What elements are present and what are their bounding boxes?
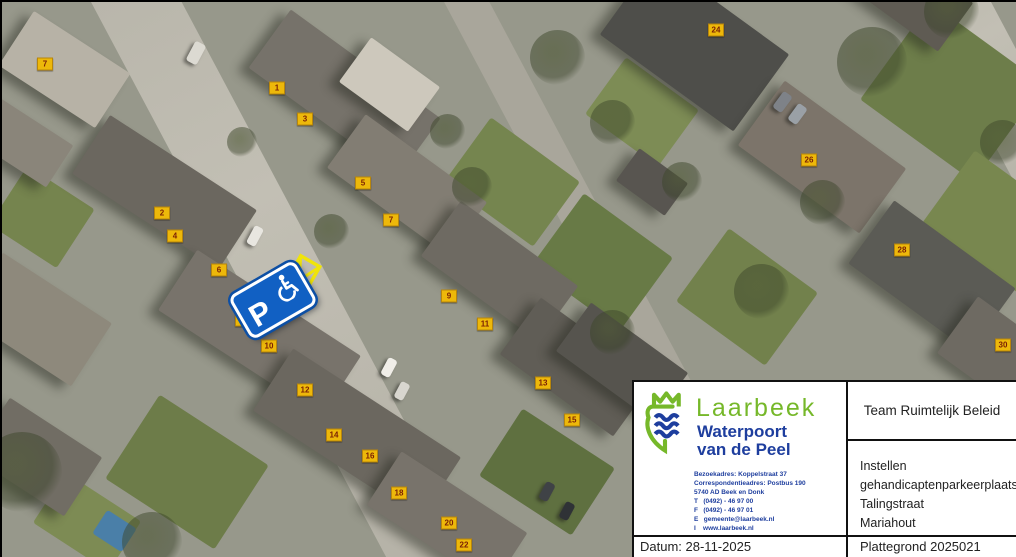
- aerial-map: 71357246810121416182022911131524262830 P: [0, 0, 1016, 557]
- house-number-marker: 12: [297, 384, 313, 397]
- text-line: F (0492) - 46 97 01: [694, 506, 806, 515]
- plan-number-cell: Plattegrond 2025021: [848, 535, 1016, 557]
- house-number-marker: 9: [441, 290, 457, 303]
- house-number-marker: 13: [535, 377, 551, 390]
- panel-left-column: Laarbeek Waterpoort van de Peel Bezoekad…: [634, 382, 846, 557]
- title-block-panel: Laarbeek Waterpoort van de Peel Bezoekad…: [632, 380, 1016, 557]
- house-number-marker: 6: [211, 264, 227, 277]
- text-line: E gemeente@laarbeek.nl: [694, 515, 806, 524]
- address-block: Bezoekadres: Koppelstraat 37Corresponden…: [694, 470, 806, 533]
- house-number-marker: 7: [383, 214, 399, 227]
- house-number-marker: 14: [326, 429, 342, 442]
- house-number-marker: 30: [995, 339, 1011, 352]
- house-number-marker: 20: [441, 517, 457, 530]
- house-number-marker: 1: [269, 82, 285, 95]
- text-line: Instellen: [860, 457, 1012, 476]
- house-number-marker: 2: [154, 207, 170, 220]
- house-number-marker: 3: [297, 113, 313, 126]
- text-line: Talingstraat: [860, 495, 1012, 514]
- house-number-marker: 18: [391, 487, 407, 500]
- house-number-marker: 11: [477, 318, 493, 331]
- project-description: InstellengehandicaptenparkeerplaatsTalin…: [848, 441, 1016, 535]
- text-line: T (0492) - 46 97 00: [694, 497, 806, 506]
- house-number-marker: 7: [37, 58, 53, 71]
- house-number-marker: 10: [261, 340, 277, 353]
- house-number-marker: 4: [167, 230, 183, 243]
- house-number-marker: 28: [894, 244, 910, 257]
- brand-subtitle-2: van de Peel: [697, 440, 791, 460]
- text-line: Mariahout: [860, 514, 1012, 533]
- house-number-marker: 16: [362, 450, 378, 463]
- laarbeek-logo-icon: [642, 390, 688, 461]
- house-number-marker: 22: [456, 539, 472, 552]
- house-number-marker: 24: [708, 24, 724, 37]
- brand-name: Laarbeek: [696, 394, 816, 423]
- team-cell: Team Ruimtelijk Beleid: [848, 382, 1016, 441]
- text-line: gehandicaptenparkeerplaats: [860, 476, 1012, 495]
- date-cell: Datum: 28-11-2025: [634, 535, 846, 557]
- parking-p-label: P: [243, 293, 279, 335]
- house-number-marker: 26: [801, 154, 817, 167]
- house-number-marker: 5: [355, 177, 371, 190]
- panel-right-column: Team Ruimtelijk Beleid Instellengehandic…: [848, 382, 1016, 557]
- text-line: 5740 AD Beek en Donk: [694, 488, 806, 497]
- house-number-marker: 15: [564, 414, 580, 427]
- text-line: Bezoekadres: Koppelstraat 37: [694, 470, 806, 479]
- wheelchair-icon: [267, 269, 306, 311]
- text-line: Correspondentieadres: Postbus 190: [694, 479, 806, 488]
- brand-subtitle-1: Waterpoort: [697, 422, 787, 442]
- text-line: I www.laarbeek.nl: [694, 524, 806, 533]
